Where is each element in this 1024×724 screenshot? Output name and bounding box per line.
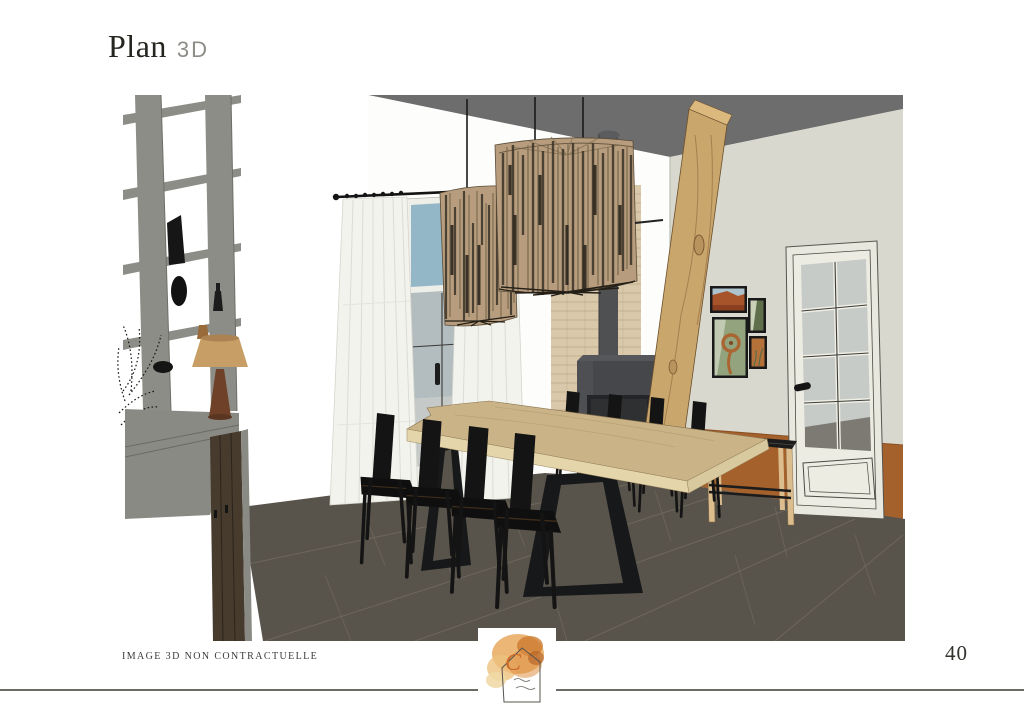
page-number: 40 [945,641,968,666]
french-door [786,241,884,519]
framed-print-fern [712,317,748,378]
table-lamp [192,335,248,421]
brand-logo: C [478,628,556,712]
sideboard [125,409,252,641]
framed-print-foliage [748,298,766,333]
page-title-main: Plan [108,28,167,64]
page-title: Plan3D [108,28,209,65]
framed-print-terracotta [749,336,767,369]
logo-script-lines [514,679,535,690]
page: Plan3D [0,0,1024,724]
logo-monogram: C [505,650,521,677]
render-scene [115,95,905,641]
footer-disclaimer: IMAGE 3D NON CONTRACTUELLE [122,651,318,662]
render-3d-dining-room [115,95,905,641]
page-title-suffix: 3D [177,37,209,62]
gallery-frames [710,286,767,378]
window-handle [435,363,440,385]
framed-print-landscape [710,286,747,313]
